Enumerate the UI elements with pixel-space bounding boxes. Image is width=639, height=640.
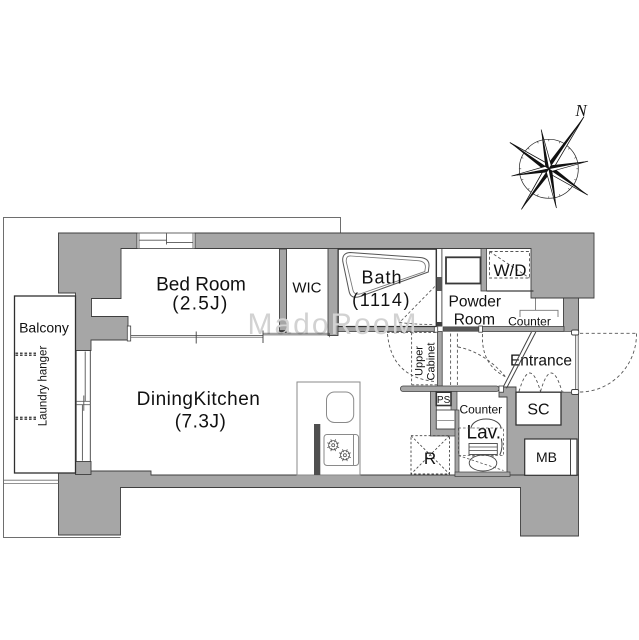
svg-text:(2.5J): (2.5J) bbox=[172, 294, 228, 315]
svg-text:Room: Room bbox=[454, 311, 495, 328]
svg-text:Powder: Powder bbox=[449, 293, 502, 310]
svg-text:R: R bbox=[424, 449, 436, 468]
svg-text:(1114): (1114) bbox=[352, 290, 411, 310]
svg-text:Counter: Counter bbox=[508, 315, 551, 329]
svg-text:W/D: W/D bbox=[493, 261, 526, 280]
svg-text:Cabinet: Cabinet bbox=[425, 343, 437, 381]
svg-text:PS: PS bbox=[437, 395, 451, 406]
svg-text:Balcony: Balcony bbox=[19, 320, 69, 336]
svg-text:Upper: Upper bbox=[414, 346, 426, 376]
svg-text:SC: SC bbox=[527, 402, 549, 419]
svg-text:Bath: Bath bbox=[361, 268, 402, 288]
svg-text:Bed Room: Bed Room bbox=[156, 275, 246, 296]
svg-text:DiningKitchen: DiningKitchen bbox=[137, 389, 261, 410]
svg-text:N: N bbox=[574, 101, 588, 120]
svg-text:Counter: Counter bbox=[459, 403, 502, 417]
svg-text:MadoRooM: MadoRooM bbox=[247, 308, 418, 341]
svg-text:MB: MB bbox=[536, 449, 557, 465]
svg-text:(7.3J): (7.3J) bbox=[175, 412, 227, 433]
svg-text:WIC: WIC bbox=[292, 280, 321, 297]
svg-text:Laundry hanger: Laundry hanger bbox=[37, 346, 49, 427]
